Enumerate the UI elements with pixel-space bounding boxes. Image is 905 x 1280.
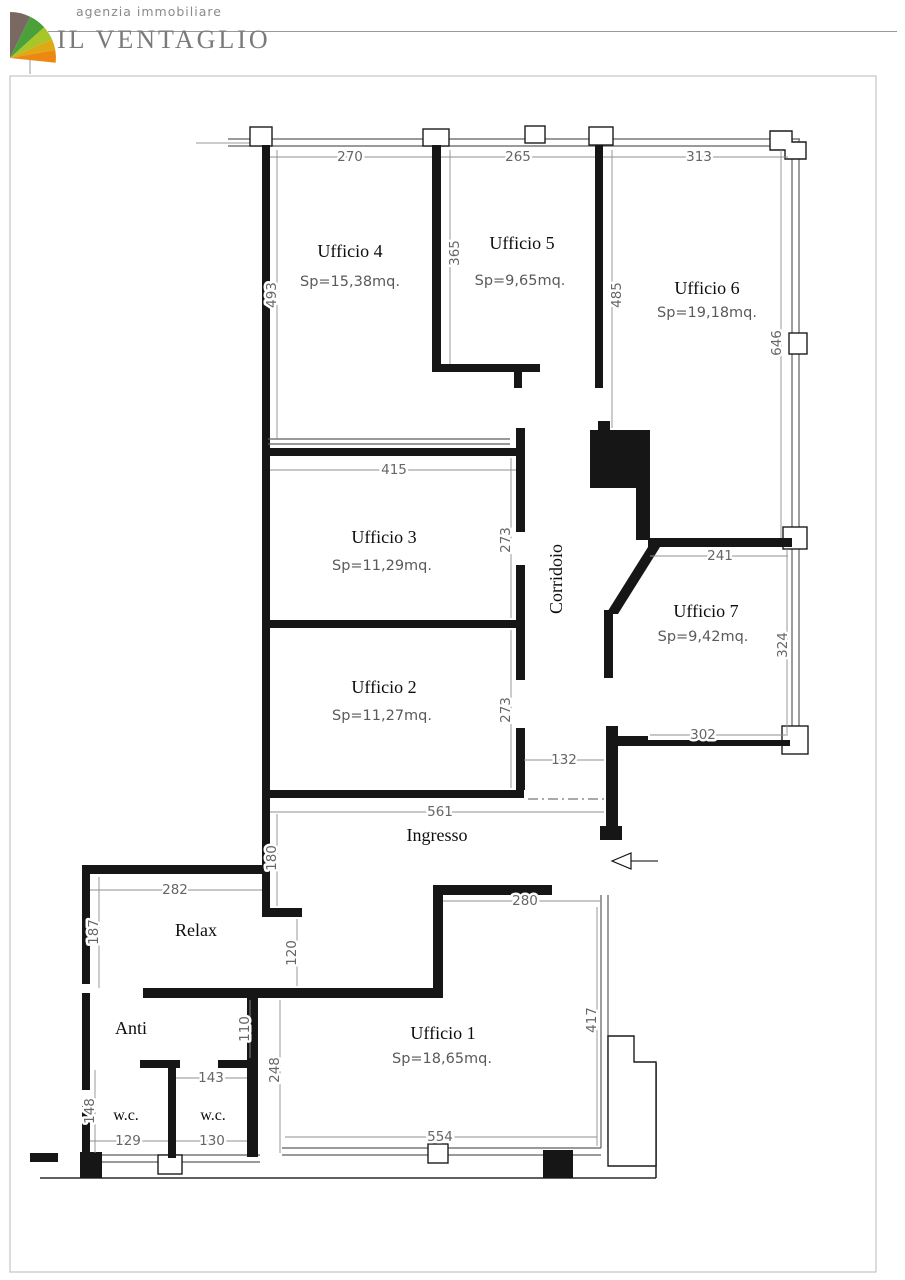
dim-u4-u5-wall: 365 <box>447 240 463 266</box>
dim-u1-width: 554 <box>427 1129 453 1145</box>
dim-niche: 132 <box>551 752 577 768</box>
room-label-corridoio: Corridoio <box>546 544 566 614</box>
dim-wc2-width: 130 <box>199 1133 225 1149</box>
dim-ingresso-width: 561 <box>427 804 453 820</box>
room-area-ufficio-5: Sp=9,65mq. <box>475 273 566 289</box>
dim-relax-height: 187 <box>86 919 102 945</box>
dim-u6-width: 313 <box>686 149 712 165</box>
dim-u2-height: 273 <box>498 697 514 723</box>
agency-header: agenzia immobiliare IL VENTAGLIO <box>10 4 897 74</box>
room-label-ufficio-2: Ufficio 2 <box>351 677 416 697</box>
room-label-anti: Anti <box>115 1018 147 1038</box>
agency-brand: IL VENTAGLIO <box>57 25 271 54</box>
room-area-ufficio-6: Sp=19,18mq. <box>657 305 757 321</box>
sheet-border <box>10 76 876 1272</box>
dim-u5-width: 265 <box>505 149 531 165</box>
dim-u3-width: 415 <box>381 462 407 478</box>
fan-logo-icon <box>10 12 56 63</box>
room-area-ufficio-7: Sp=9,42mq. <box>658 629 749 645</box>
room-label-ufficio-7: Ufficio 7 <box>673 601 738 621</box>
dim-u6-height: 646 <box>769 330 785 356</box>
corner-step-top-right <box>770 131 806 159</box>
floor-plan: agenzia immobiliare IL VENTAGLIO <box>0 0 905 1280</box>
room-area-ufficio-2: Sp=11,27mq. <box>332 708 432 724</box>
dim-u7-height: 324 <box>775 632 791 658</box>
agency-tagline: agenzia immobiliare <box>76 4 222 19</box>
dim-u3-height: 273 <box>498 527 514 553</box>
room-area-ufficio-4: Sp=15,38mq. <box>300 274 400 290</box>
dim-u7-bottom: 302 <box>690 727 716 743</box>
dim-wc-height: 148 <box>82 1098 98 1124</box>
room-label-ingresso: Ingresso <box>407 825 468 845</box>
dim-wc1-width: 129 <box>115 1133 141 1149</box>
dim-u1-height: 417 <box>584 1007 600 1033</box>
room-area-ufficio-1: Sp=18,65mq. <box>392 1051 492 1067</box>
dim-u5-height: 485 <box>609 282 625 308</box>
room-area-ufficio-3: Sp=11,29mq. <box>332 558 432 574</box>
pier-east-bottom <box>608 1036 656 1166</box>
dim-anti-height: 110 <box>237 1016 253 1042</box>
floorplan-page: agenzia immobiliare IL VENTAGLIO <box>0 0 905 1280</box>
room-label-ufficio-1: Ufficio 1 <box>410 1023 475 1043</box>
room-label-ufficio-4: Ufficio 4 <box>317 241 382 261</box>
entrance-arrow-icon <box>612 853 658 869</box>
dim-anti-east: 248 <box>267 1057 283 1083</box>
dim-u1-top: 280 <box>512 893 538 909</box>
dim-u7-width: 241 <box>707 548 733 564</box>
room-label-wc-1: w.c. <box>113 1107 139 1124</box>
dim-ingresso-height: 180 <box>264 845 280 871</box>
dim-wc-top: 143 <box>198 1070 224 1086</box>
room-label-ufficio-6: Ufficio 6 <box>674 278 739 298</box>
room-label-relax: Relax <box>175 920 217 940</box>
dim-u4-width: 270 <box>337 149 363 165</box>
room-label-ufficio-5: Ufficio 5 <box>489 233 554 253</box>
room-label-wc-2: w.c. <box>200 1107 226 1124</box>
dim-u4-height: 493 <box>264 282 280 308</box>
room-label-ufficio-3: Ufficio 3 <box>351 527 416 547</box>
dim-relax-anti: 120 <box>284 940 300 966</box>
dim-relax-width: 282 <box>162 882 188 898</box>
